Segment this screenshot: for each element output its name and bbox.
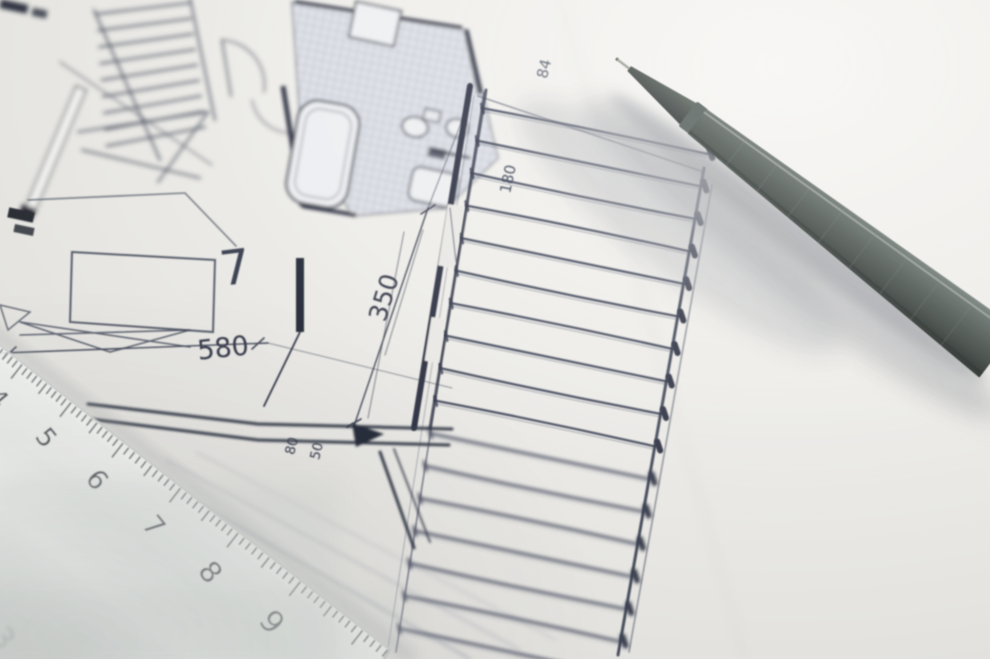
warm-tone-overlay [0, 0, 990, 659]
photo-floorplan-scene: 580 350 7 84 180 80 50 [0, 0, 990, 659]
scene-svg: 580 350 7 84 180 80 50 [0, 0, 990, 659]
vignette [0, 0, 990, 659]
